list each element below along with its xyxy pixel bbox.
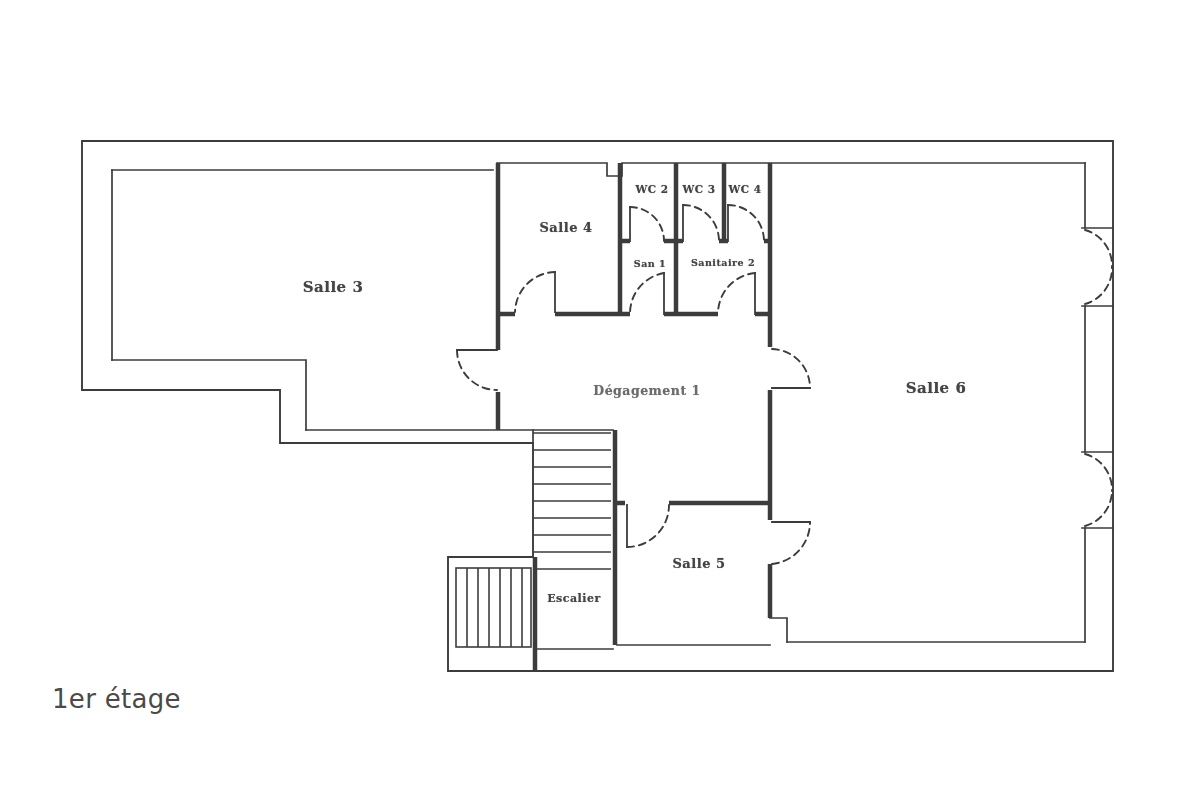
floor-plan-drawing: Salle 3 Salle 4 WC 2 WC 3 WC 4 San 1 San… — [0, 0, 1200, 800]
room-labels: Salle 3 Salle 4 WC 2 WC 3 WC 4 San 1 San… — [0, 0, 1200, 800]
room-label-wc-4: WC 4 — [728, 183, 761, 195]
room-label-wc-3: WC 3 — [682, 183, 715, 195]
stair-label-escalier: Escalier — [547, 592, 601, 605]
room-label-sanitaire-2: Sanitaire 2 — [691, 257, 755, 268]
floor-title: 1er étage — [52, 684, 181, 714]
room-label-san-1: San 1 — [634, 258, 666, 269]
room-label-salle-6: Salle 6 — [906, 379, 967, 397]
room-label-wc-2: WC 2 — [635, 183, 668, 195]
scanned-floor-plan-page: Salle 3 Salle 4 WC 2 WC 3 WC 4 San 1 San… — [0, 0, 1200, 800]
room-label-salle-3: Salle 3 — [303, 278, 364, 296]
room-label-salle-4: Salle 4 — [539, 220, 592, 235]
room-label-degagement-1: Dégagement 1 — [593, 383, 700, 398]
room-label-salle-5: Salle 5 — [672, 556, 725, 571]
